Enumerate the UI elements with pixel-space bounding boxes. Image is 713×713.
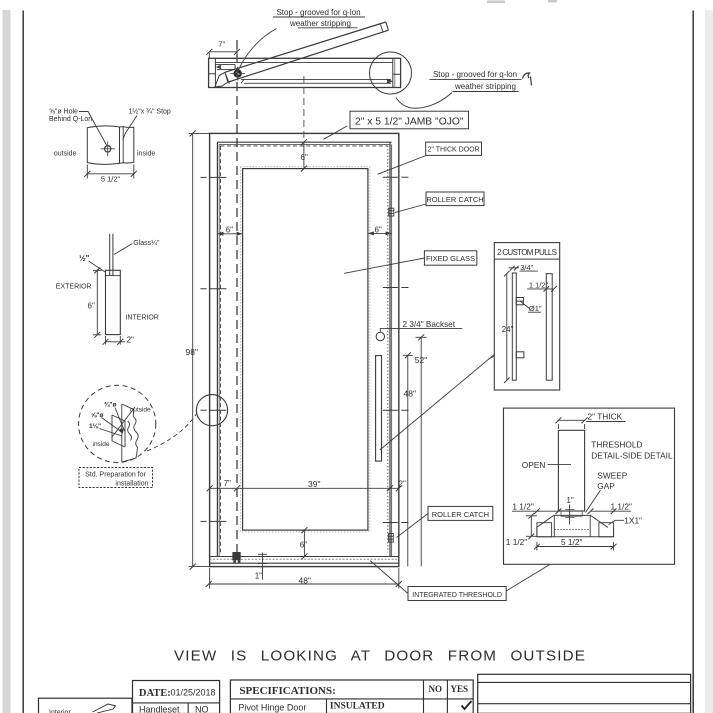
svg-text:2 3/4" Backset: 2 3/4" Backset — [403, 320, 456, 329]
svg-text:NO: NO — [195, 705, 209, 713]
svg-text:Glass¼": Glass¼" — [133, 240, 160, 247]
svg-text:YES: YES — [451, 684, 469, 694]
svg-text:inside: inside — [137, 151, 155, 158]
svg-text:DETAIL-SIDE DETAIL: DETAIL-SIDE DETAIL — [591, 451, 673, 461]
svg-text:1½"x ¾" Stop: 1½"x ¾" Stop — [129, 108, 171, 116]
svg-text:SWEEP: SWEEP — [597, 470, 627, 480]
svg-text:Std. Preparation for: Std. Preparation for — [85, 471, 146, 478]
svg-text:INTEGRATED THRESHOLD: INTEGRATED THRESHOLD — [412, 592, 502, 599]
svg-text:DATE:: DATE: — [139, 688, 171, 699]
svg-text:1⅛": 1⅛" — [89, 423, 101, 430]
svg-text:6": 6" — [88, 302, 95, 311]
svg-text:Stop - grooved for q-lon: Stop - grooved for q-lon — [276, 8, 360, 17]
svg-text:Behind Q-Lon: Behind Q-Lon — [49, 116, 92, 123]
svg-text:01/25/2018: 01/25/2018 — [171, 688, 216, 698]
svg-text:weather stripping: weather stripping — [289, 19, 351, 28]
svg-text:6": 6" — [300, 540, 307, 549]
svg-text:1X1": 1X1" — [624, 515, 642, 525]
svg-text:24": 24" — [502, 325, 514, 334]
svg-text:1 1/2": 1 1/2" — [529, 281, 549, 290]
svg-text:INTERIOR: INTERIOR — [125, 315, 158, 322]
svg-text:1 1/2": 1 1/2" — [506, 537, 527, 547]
svg-text:2 CUSTOM PULLS: 2 CUSTOM PULLS — [497, 248, 557, 257]
svg-text:¾"ø: ¾"ø — [104, 401, 117, 409]
svg-text:Stop - grooved for q-lon: Stop - grooved for q-lon — [433, 70, 517, 79]
svg-text:⅝"ø Hole: ⅝"ø Hole — [49, 109, 78, 116]
svg-text:Ø1": Ø1" — [529, 304, 542, 313]
svg-text:ROLLER CATCH: ROLLER CATCH — [432, 510, 489, 519]
svg-text:installation: installation — [115, 480, 148, 487]
svg-text:½": ½" — [79, 254, 90, 263]
svg-text:inside: inside — [93, 441, 110, 448]
svg-text:outside: outside — [130, 406, 151, 413]
svg-text:48": 48" — [404, 388, 416, 398]
svg-text:2" THICK DOOR: 2" THICK DOOR — [428, 147, 480, 154]
svg-text:6": 6" — [226, 225, 233, 234]
svg-text:3/4": 3/4" — [520, 263, 533, 272]
svg-text:2" THICK: 2" THICK — [588, 412, 623, 422]
svg-text:5 1/2": 5 1/2" — [101, 174, 121, 183]
svg-text:2" x 5 1/2" JAMB "OJO": 2" x 5 1/2" JAMB "OJO" — [355, 117, 464, 128]
svg-text:⅝"ø: ⅝"ø — [91, 412, 104, 419]
svg-text:FIXED GLASS: FIXED GLASS — [426, 254, 475, 263]
svg-text:2": 2" — [127, 336, 134, 345]
svg-text:EXTERIOR: EXTERIOR — [56, 283, 92, 290]
svg-text:Pivot Hinge Door: Pivot Hinge Door — [238, 703, 306, 713]
svg-text:5 1/2": 5 1/2" — [561, 537, 582, 547]
svg-text:1 1/2": 1 1/2" — [611, 501, 632, 511]
svg-text:ROLLER CATCH: ROLLER CATCH — [426, 195, 483, 204]
svg-text:7": 7" — [218, 40, 225, 49]
svg-text:1": 1" — [255, 571, 262, 580]
svg-text:39": 39" — [308, 479, 320, 489]
svg-text:VIEW IS LOOKING AT DOOR FROM O: VIEW IS LOOKING AT DOOR FROM OUTSIDE — [174, 648, 586, 665]
svg-text:NO: NO — [429, 684, 443, 694]
svg-text:2": 2" — [399, 480, 406, 489]
svg-text:Handleset: Handleset — [139, 705, 180, 713]
svg-text:6": 6" — [301, 153, 308, 162]
svg-text:GAP: GAP — [597, 481, 615, 491]
svg-text:outside: outside — [54, 151, 77, 158]
svg-text:48": 48" — [299, 575, 311, 585]
svg-text:SPECIFICATIONS:: SPECIFICATIONS: — [239, 685, 335, 697]
svg-text:OPEN: OPEN — [522, 460, 546, 470]
svg-text:52": 52" — [415, 355, 427, 365]
svg-text:INSULATED: INSULATED — [330, 702, 385, 712]
svg-text:THRESHOLD: THRESHOLD — [591, 440, 642, 450]
svg-text:1 1/2": 1 1/2" — [512, 501, 533, 511]
svg-text:Interior: Interior — [49, 710, 71, 713]
svg-text:98": 98" — [186, 347, 198, 357]
svg-text:7": 7" — [224, 479, 231, 488]
svg-text:6": 6" — [375, 225, 382, 234]
svg-text:1": 1" — [567, 496, 574, 505]
svg-text:weather stripping: weather stripping — [454, 82, 516, 91]
